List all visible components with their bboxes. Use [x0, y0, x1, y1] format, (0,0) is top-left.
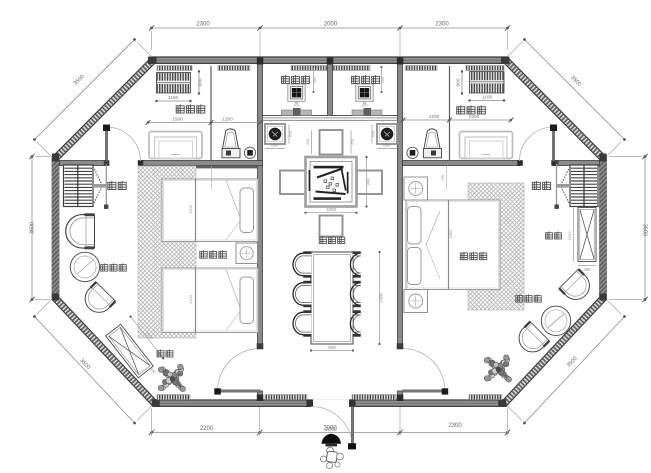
svg-text:2000: 2000: [324, 22, 338, 28]
svg-text:400: 400: [584, 267, 592, 272]
svg-text:600: 600: [383, 143, 391, 148]
svg-text:3500: 3500: [642, 224, 648, 236]
svg-text:600: 600: [289, 131, 293, 137]
svg-text:2300: 2300: [448, 423, 462, 429]
svg-text:1800: 1800: [448, 229, 453, 239]
svg-text:900: 900: [456, 78, 462, 86]
svg-text:1500: 1500: [567, 231, 572, 241]
svg-text:1000: 1000: [326, 207, 337, 212]
svg-text:3500: 3500: [30, 222, 36, 234]
svg-text:1100: 1100: [482, 94, 493, 100]
svg-text:1200: 1200: [222, 116, 233, 122]
svg-text:900: 900: [366, 178, 371, 186]
svg-text:300: 300: [361, 104, 367, 108]
svg-text:2000: 2000: [325, 427, 337, 433]
svg-text:600: 600: [372, 131, 376, 137]
svg-text:1200: 1200: [188, 204, 193, 214]
svg-text:1500: 1500: [172, 116, 183, 122]
svg-text:900: 900: [381, 77, 385, 83]
svg-text:1200: 1200: [188, 294, 193, 304]
svg-text:1800: 1800: [379, 292, 384, 303]
svg-text:1200: 1200: [429, 114, 440, 120]
svg-text:1100: 1100: [168, 95, 179, 101]
svg-text:450: 450: [351, 139, 355, 145]
svg-text:750: 750: [441, 175, 445, 181]
svg-text:1500: 1500: [469, 114, 480, 120]
svg-text:300: 300: [293, 104, 299, 108]
svg-text:2300: 2300: [196, 22, 210, 28]
svg-text:600: 600: [271, 143, 279, 148]
svg-text:2300: 2300: [435, 22, 449, 28]
svg-text:2200: 2200: [200, 426, 214, 432]
svg-text:900: 900: [328, 345, 336, 350]
svg-text:900: 900: [313, 77, 317, 83]
svg-text:450: 450: [306, 139, 310, 145]
svg-text:900: 900: [198, 78, 204, 86]
